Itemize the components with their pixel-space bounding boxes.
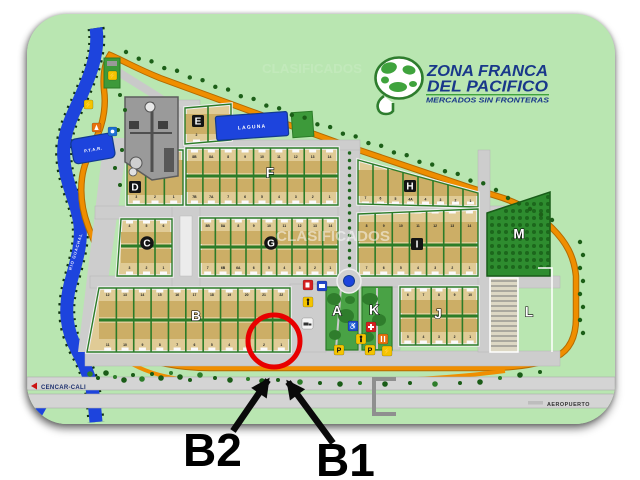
- lot-number: 7: [176, 343, 178, 347]
- lot-number: 18: [210, 293, 214, 297]
- lot-number: 5: [395, 197, 397, 201]
- lot-number: 5: [211, 343, 213, 347]
- lot-number: 6: [253, 266, 255, 270]
- entrance-gate-sign-icon: ⚡: [108, 71, 117, 80]
- lot-number: 1: [470, 199, 472, 203]
- lot-number: 4: [417, 266, 419, 270]
- lot-number: 3: [434, 266, 436, 270]
- lot-number: 10: [399, 224, 403, 228]
- lot-number: 4: [283, 266, 285, 270]
- lot-number: 2: [314, 266, 316, 270]
- lot-number: 6: [380, 197, 382, 201]
- lot-number: 3: [246, 343, 248, 347]
- lot-number: 4: [425, 198, 427, 202]
- block-C: 456321C: [117, 219, 172, 276]
- accessibility-sign-icon: ♿: [348, 321, 358, 331]
- parking-sign-1-icon: P: [334, 345, 344, 355]
- block-F: 8B8A8910111213147B7A7654321F: [186, 148, 338, 205]
- lot-number: 7: [422, 293, 424, 297]
- block-H-label: H: [406, 182, 413, 193]
- b1-label: B1: [316, 437, 375, 480]
- lot-number: 8B: [205, 224, 210, 228]
- lot-number: 11: [283, 224, 287, 228]
- lot-number: 17: [193, 293, 197, 297]
- parking-sign-2-icon: P: [365, 345, 375, 355]
- lot-number: 14: [328, 155, 332, 159]
- block-J-label: J: [434, 307, 442, 322]
- lot-number: 4: [129, 224, 131, 228]
- lot-number: 3: [299, 266, 301, 270]
- lot-number: 6: [194, 343, 196, 347]
- block-L-label: L: [525, 305, 533, 320]
- lot-number: 1: [468, 266, 470, 270]
- lot-number: 6A: [236, 266, 241, 270]
- watermark-center: CLASIFICADOS: [276, 229, 390, 245]
- lot-number: 11: [106, 343, 110, 347]
- lot-number: 2: [312, 195, 314, 199]
- gas-flame-sign-icon: [92, 123, 101, 132]
- lot-number: 6: [383, 266, 385, 270]
- svg-text:⚡: ⚡: [85, 101, 92, 109]
- block-I-label: I: [416, 240, 419, 251]
- lot-number: 14: [328, 224, 332, 228]
- lot-number: 9: [253, 224, 255, 228]
- lot-number: 15: [158, 293, 162, 297]
- pedestrian-crossing-sign-icon: [303, 297, 313, 307]
- lot-number: 10: [123, 343, 127, 347]
- svg-text:⚡: ⚡: [383, 347, 390, 355]
- lot-number: 3: [438, 335, 440, 339]
- power-substation-sign-icon: ⚡: [84, 100, 93, 109]
- lot-number: 12: [433, 224, 437, 228]
- lot-number: 2: [451, 266, 453, 270]
- block-A: A: [326, 287, 358, 350]
- lot-number: 7: [366, 266, 368, 270]
- lot-number: 3: [295, 195, 297, 199]
- lot-number: 2: [146, 266, 148, 270]
- svg-text:P: P: [337, 348, 342, 355]
- lot-number: 13: [311, 155, 315, 159]
- svg-text:⚡: ⚡: [109, 72, 116, 80]
- lot-number: 1: [329, 195, 331, 199]
- lot-number: 3: [129, 266, 131, 270]
- lot-number: 7A: [209, 195, 214, 199]
- lot-number: 2: [454, 335, 456, 339]
- first-aid-sign-icon: [366, 322, 376, 332]
- b2-label: B2: [183, 427, 242, 473]
- block-G: 8B8A89101112131476B6A654321G: [200, 218, 338, 276]
- block-J: 67891054321J: [400, 287, 478, 345]
- lot-number: 2: [196, 133, 198, 137]
- lot-number: 8: [227, 155, 229, 159]
- lot-number: 22: [279, 293, 283, 297]
- water-supply-sign-icon: [108, 127, 117, 136]
- site-map: A12131415161718192021221110987654321B456…: [27, 14, 615, 424]
- lot-number: 16: [175, 293, 179, 297]
- lot-number: 6: [163, 224, 165, 228]
- lot-number: 7B: [192, 195, 197, 199]
- lot-number: 6: [407, 293, 409, 297]
- lot-number: 8A: [209, 155, 214, 159]
- lot-number: 8: [159, 343, 161, 347]
- lot-number: 1: [163, 266, 165, 270]
- lot-number: 21: [262, 293, 266, 297]
- roundabout: [337, 269, 361, 293]
- lot-number: 8: [438, 293, 440, 297]
- lot-number: 8B: [192, 155, 197, 159]
- block-E-label: E: [195, 117, 202, 128]
- lot-number: 12: [294, 155, 298, 159]
- lot-number: 12: [298, 224, 302, 228]
- lot-number: 2: [455, 198, 457, 202]
- lot-number: 5: [146, 224, 148, 228]
- green-lot: [291, 111, 314, 137]
- lot-number: 7: [207, 266, 209, 270]
- block-G-label: G: [267, 239, 275, 250]
- ptar-plant: [125, 97, 178, 180]
- logo-line1: ZONA FRANCA: [426, 63, 548, 80]
- svg-text:♿: ♿: [349, 322, 358, 331]
- lot-number: 3: [135, 195, 137, 199]
- lot-number: 1: [469, 335, 471, 339]
- lot-number: 1: [280, 343, 282, 347]
- lot-number: 3: [440, 198, 442, 202]
- lot-number: 4A: [408, 197, 413, 201]
- watermark-top: CLASIFICADOS: [262, 61, 362, 76]
- lot-number: 4: [422, 335, 424, 339]
- pedestrian-crossing-sign-2-icon: [356, 334, 366, 344]
- block-K-label: K: [369, 303, 379, 318]
- block-A-label: A: [332, 304, 342, 319]
- road-median: [180, 216, 192, 276]
- lot-number: 20: [245, 293, 249, 297]
- lot-number: 10: [267, 224, 271, 228]
- logo-line2: DEL PACIFICO: [427, 79, 549, 96]
- lot-number: 19: [227, 293, 231, 297]
- lot-number: 11: [277, 155, 281, 159]
- block-B-label: B: [191, 309, 201, 324]
- lot-number: 4: [278, 195, 280, 199]
- bus-stop-sign-icon: [317, 281, 327, 291]
- cencar-label: CENCAR-CALI: [41, 385, 86, 391]
- truck-route-sign-icon: [302, 318, 313, 329]
- block-D-label: D: [131, 183, 138, 194]
- lot-number: 9: [244, 155, 246, 159]
- lot-number: 5: [261, 195, 263, 199]
- lot-number: 13: [313, 224, 317, 228]
- lot-number: 10: [468, 293, 472, 297]
- laguna: LAGUNA: [215, 112, 288, 141]
- lot-number: 2: [263, 343, 265, 347]
- lot-number: 5: [400, 266, 402, 270]
- lot-number: 8: [366, 224, 368, 228]
- restaurant-sign-icon: [378, 334, 388, 344]
- lot-number: 5: [407, 335, 409, 339]
- block-C-label: C: [143, 239, 150, 250]
- lot-number: 14: [141, 293, 145, 297]
- lot-number: 13: [450, 224, 454, 228]
- aeropuerto-road: [27, 394, 615, 408]
- lot-number: 4: [228, 343, 230, 347]
- lot-number: 9: [383, 224, 385, 228]
- lot-number: 6B: [221, 266, 226, 270]
- lot-number: 7: [227, 195, 229, 199]
- map-card: A12131415161718192021221110987654321B456…: [27, 14, 615, 424]
- block-M-label: M: [513, 227, 524, 242]
- lot-number: 9: [141, 343, 143, 347]
- electric-power-sign-icon: ⚡: [382, 346, 392, 356]
- lot-number: 13: [123, 293, 127, 297]
- lot-number: 7: [365, 196, 367, 200]
- svg-text:P: P: [368, 348, 373, 355]
- lot-number: 9: [454, 293, 456, 297]
- lot-number: 14: [468, 224, 472, 228]
- lot-number: 11: [416, 224, 420, 228]
- lot-number: 10: [260, 155, 264, 159]
- lot-number: 1: [173, 195, 175, 199]
- block-B: 12131415161718192021221110987654321B: [87, 288, 290, 352]
- fuel-station-sign-icon: [303, 280, 313, 290]
- lot-number: 12: [106, 293, 110, 297]
- lot-number: 8A: [221, 224, 226, 228]
- lot-number: 6: [244, 195, 246, 199]
- aeropuerto-label: AEROPUERTO: [547, 402, 590, 408]
- lot-number: 1: [329, 266, 331, 270]
- block-F-label: F: [266, 166, 274, 181]
- logo-tagline: MERCADOS SIN FRONTERAS: [426, 96, 549, 105]
- lot-number: 8: [237, 224, 239, 228]
- lot-number: 5: [268, 266, 270, 270]
- road-marking: [528, 401, 543, 405]
- lot-number: 2: [154, 195, 156, 199]
- screenshot: A12131415161718192021221110987654321B456…: [0, 0, 640, 480]
